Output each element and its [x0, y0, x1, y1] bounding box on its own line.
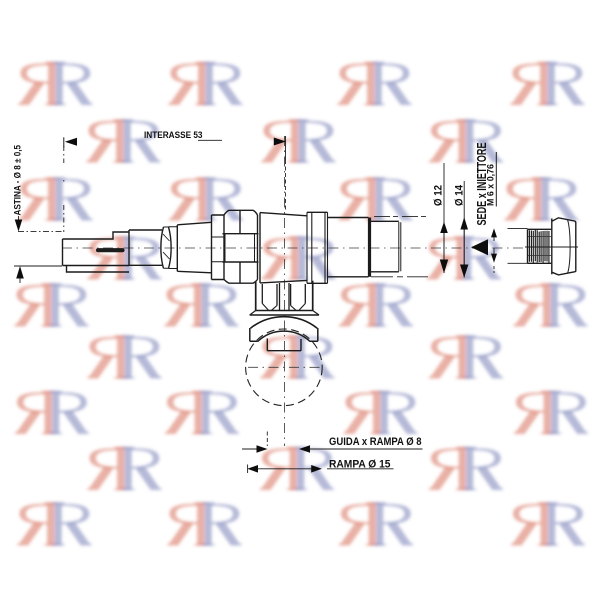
- svg-text:RAMPA Ø 15: RAMPA Ø 15: [329, 458, 391, 470]
- svg-text:GUIDA x RAMPA Ø 8: GUIDA x RAMPA Ø 8: [329, 436, 422, 448]
- svg-text:M 6 x 0,76: M 6 x 0,76: [486, 164, 497, 206]
- svg-text:Ø 14: Ø 14: [453, 184, 465, 206]
- svg-text:ASTINA - Ø 8 ± 0,5: ASTINA - Ø 8 ± 0,5: [13, 145, 23, 216]
- svg-text:INTERASSE 53: INTERASSE 53: [144, 130, 203, 141]
- svg-text:Ø 12: Ø 12: [432, 185, 444, 206]
